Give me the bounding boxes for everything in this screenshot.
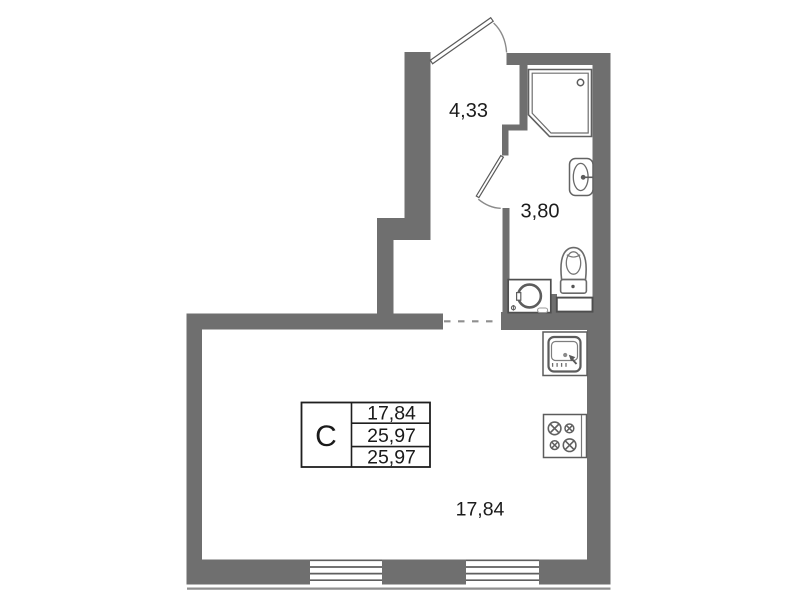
svg-text:17,84: 17,84 [456, 499, 505, 521]
svg-text:17,84: 17,84 [367, 403, 416, 425]
svg-text:3,80: 3,80 [521, 201, 560, 223]
svg-text:4,33: 4,33 [449, 100, 488, 122]
svg-text:25,97: 25,97 [367, 425, 416, 447]
svg-text:C: C [315, 420, 337, 453]
svg-text:25,97: 25,97 [367, 447, 416, 469]
